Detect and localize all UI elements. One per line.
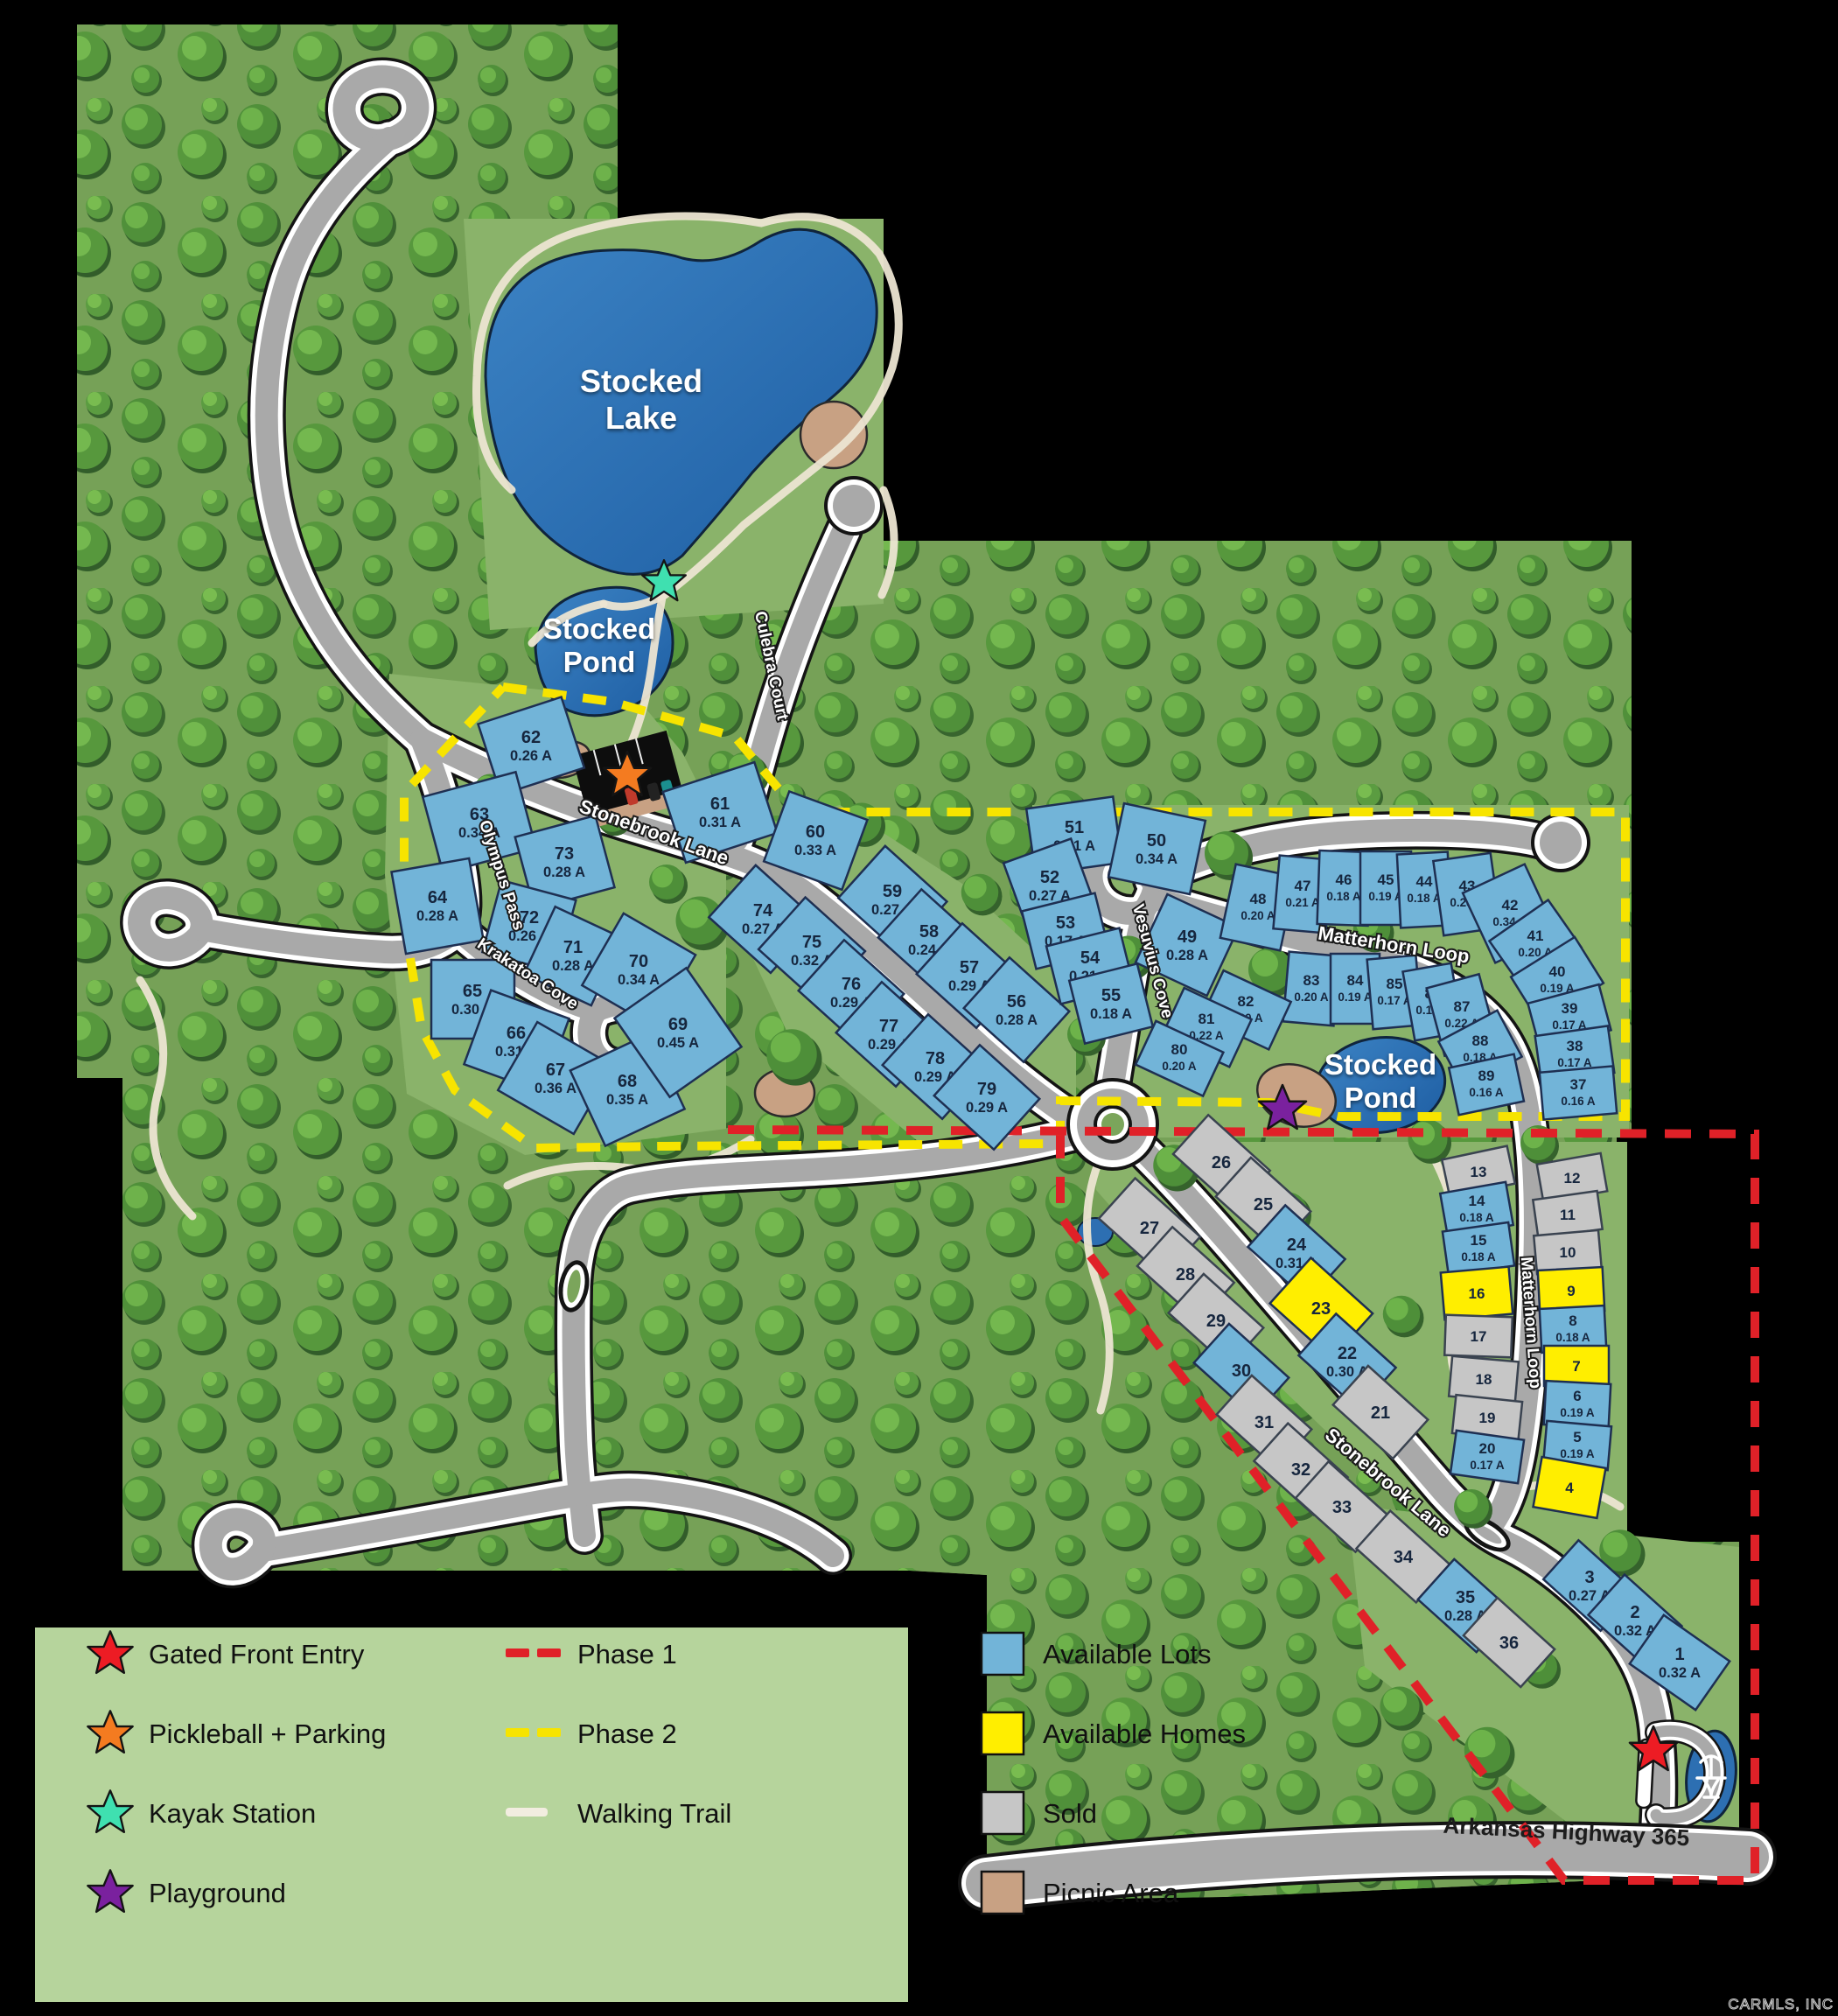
svg-text:60: 60 [806, 822, 825, 842]
svg-text:0.28 A: 0.28 A [1166, 948, 1208, 963]
svg-text:78: 78 [926, 1049, 945, 1068]
svg-text:50: 50 [1147, 831, 1166, 850]
lot-17[interactable]: 17 [1444, 1315, 1513, 1358]
svg-text:0.28 A: 0.28 A [543, 864, 585, 880]
svg-text:0.21 A: 0.21 A [1285, 896, 1320, 909]
legend-picnic-area-label: Picnic Area [1043, 1878, 1179, 1908]
svg-text:13: 13 [1471, 1164, 1487, 1180]
svg-text:37: 37 [1570, 1076, 1587, 1093]
svg-text:74: 74 [753, 901, 773, 920]
lot-20[interactable]: 200.17 A [1450, 1431, 1524, 1483]
svg-text:0.20 A: 0.20 A [1162, 1060, 1197, 1073]
svg-text:0.34 A: 0.34 A [1136, 851, 1178, 867]
legend-pickleball-label: Pickleball + Parking [149, 1718, 386, 1749]
svg-text:46: 46 [1336, 871, 1352, 888]
svg-text:71: 71 [563, 938, 583, 957]
svg-text:80: 80 [1171, 1041, 1188, 1058]
legend-available-homes-label: Available Homes [1043, 1718, 1246, 1749]
svg-text:42: 42 [1502, 897, 1519, 913]
site-plan-page: 620.26 A 610.31 A 630.34 A 730.28 A 640.… [0, 0, 1838, 2016]
svg-text:23: 23 [1311, 1299, 1331, 1319]
svg-text:0.16 A: 0.16 A [1561, 1095, 1596, 1108]
svg-text:17: 17 [1471, 1328, 1487, 1345]
svg-text:3: 3 [1584, 1568, 1594, 1587]
svg-text:0.17 A: 0.17 A [1557, 1056, 1592, 1069]
svg-text:0.34 A: 0.34 A [618, 972, 660, 988]
svg-text:77: 77 [879, 1017, 898, 1036]
svg-text:16: 16 [1469, 1285, 1485, 1302]
svg-text:Pond: Pond [563, 646, 635, 678]
svg-text:54: 54 [1080, 948, 1101, 968]
svg-text:7: 7 [1572, 1358, 1580, 1375]
svg-text:38: 38 [1567, 1038, 1583, 1054]
lot-37[interactable]: 370.16 A [1540, 1066, 1617, 1119]
svg-text:55: 55 [1101, 986, 1121, 1005]
svg-text:0.35 A: 0.35 A [606, 1092, 648, 1108]
svg-text:19: 19 [1479, 1410, 1496, 1426]
legend-phase1-label: Phase 1 [577, 1639, 677, 1669]
svg-text:0.31 A: 0.31 A [699, 815, 741, 830]
svg-text:52: 52 [1040, 868, 1059, 887]
svg-text:62: 62 [521, 728, 541, 747]
legend-available-lots-swatch [982, 1633, 1024, 1675]
svg-text:10: 10 [1560, 1244, 1576, 1261]
svg-text:9: 9 [1567, 1283, 1575, 1299]
svg-text:2: 2 [1630, 1603, 1639, 1622]
svg-text:Pond: Pond [1345, 1081, 1416, 1114]
svg-text:24: 24 [1287, 1235, 1307, 1255]
watermark: CARMLS, INC [1728, 1996, 1834, 2012]
svg-text:0.20 A: 0.20 A [1240, 909, 1275, 922]
svg-text:14: 14 [1469, 1193, 1485, 1209]
lot-7[interactable]: 7 [1544, 1346, 1609, 1386]
svg-text:8: 8 [1569, 1312, 1576, 1329]
svg-text:12: 12 [1564, 1170, 1581, 1186]
svg-text:84: 84 [1347, 972, 1364, 989]
svg-text:0.18 A: 0.18 A [1407, 892, 1442, 905]
svg-text:40: 40 [1549, 963, 1566, 980]
legend-walking-trail-line-icon [506, 1808, 548, 1816]
svg-text:0.45 A: 0.45 A [657, 1035, 699, 1051]
svg-text:20: 20 [1479, 1440, 1496, 1457]
svg-text:0.28 A: 0.28 A [552, 958, 594, 974]
svg-text:88: 88 [1472, 1032, 1489, 1049]
svg-text:0.32 A: 0.32 A [1659, 1665, 1701, 1681]
svg-text:47: 47 [1295, 878, 1311, 894]
svg-text:35: 35 [1456, 1588, 1475, 1607]
svg-text:0.19 A: 0.19 A [1338, 990, 1373, 1004]
legend-sold-swatch [982, 1792, 1024, 1834]
svg-text:27: 27 [1140, 1219, 1159, 1238]
svg-text:69: 69 [668, 1015, 688, 1034]
svg-text:18: 18 [1476, 1371, 1492, 1388]
svg-text:0.28 A: 0.28 A [416, 908, 458, 924]
svg-text:44: 44 [1416, 873, 1433, 890]
svg-text:68: 68 [618, 1072, 637, 1091]
roundabout [1066, 1078, 1159, 1171]
lot-50[interactable]: 500.34 A [1108, 803, 1206, 894]
svg-text:87: 87 [1454, 998, 1471, 1015]
svg-text:76: 76 [842, 975, 861, 994]
svg-text:15: 15 [1471, 1232, 1487, 1249]
svg-text:83: 83 [1303, 972, 1320, 989]
svg-text:0.18 A: 0.18 A [1555, 1331, 1590, 1344]
svg-text:26: 26 [1212, 1153, 1231, 1172]
svg-text:57: 57 [960, 958, 979, 977]
svg-text:82: 82 [1238, 993, 1254, 1010]
svg-text:89: 89 [1478, 1067, 1495, 1084]
legend-gated-entry-label: Gated Front Entry [149, 1639, 365, 1669]
svg-text:25: 25 [1254, 1195, 1273, 1214]
svg-text:79: 79 [977, 1080, 996, 1099]
svg-text:75: 75 [802, 933, 821, 952]
legend-available-lots-label: Available Lots [1043, 1639, 1211, 1669]
svg-text:28: 28 [1176, 1265, 1195, 1284]
svg-text:61: 61 [710, 794, 730, 814]
legend-available-homes-swatch [982, 1712, 1024, 1754]
svg-text:22: 22 [1338, 1344, 1357, 1363]
svg-text:56: 56 [1007, 992, 1026, 1011]
svg-text:29: 29 [1206, 1312, 1226, 1331]
svg-text:Stocked: Stocked [1324, 1048, 1436, 1081]
svg-text:81: 81 [1199, 1011, 1215, 1027]
legend-picnic-area-swatch [982, 1872, 1024, 1914]
svg-text:0.16 A: 0.16 A [1469, 1086, 1504, 1099]
site-map: 620.26 A 610.31 A 630.34 A 730.28 A 640.… [0, 0, 1838, 2016]
svg-text:45: 45 [1378, 871, 1394, 888]
svg-text:0.20 A: 0.20 A [1294, 990, 1329, 1004]
svg-text:48: 48 [1250, 891, 1267, 907]
svg-text:33: 33 [1332, 1498, 1352, 1517]
svg-text:85: 85 [1387, 976, 1403, 992]
svg-text:0.26 A: 0.26 A [510, 748, 552, 764]
svg-text:39: 39 [1562, 1000, 1578, 1017]
svg-text:1: 1 [1674, 1645, 1684, 1664]
svg-text:0.33 A: 0.33 A [794, 843, 836, 858]
svg-text:0.19 A: 0.19 A [1560, 1447, 1595, 1460]
svg-text:36: 36 [1499, 1634, 1519, 1653]
lot-4[interactable]: 4 [1534, 1457, 1606, 1518]
svg-text:0.28 A: 0.28 A [996, 1012, 1038, 1028]
svg-text:0.19 A: 0.19 A [1560, 1406, 1595, 1419]
legend-phase2-label: Phase 2 [577, 1718, 677, 1749]
svg-text:6: 6 [1573, 1388, 1581, 1404]
svg-text:Lake: Lake [605, 400, 677, 436]
svg-text:64: 64 [428, 888, 448, 907]
svg-text:Stocked: Stocked [580, 363, 702, 399]
svg-text:59: 59 [883, 882, 902, 901]
legend-playground-label: Playground [149, 1878, 286, 1908]
svg-text:4: 4 [1565, 1480, 1574, 1496]
svg-text:70: 70 [629, 952, 648, 971]
svg-text:Stocked: Stocked [543, 612, 655, 645]
svg-text:65: 65 [463, 982, 482, 1001]
svg-text:21: 21 [1371, 1403, 1390, 1423]
svg-text:41: 41 [1527, 927, 1544, 944]
svg-text:66: 66 [507, 1024, 526, 1043]
svg-text:31: 31 [1254, 1413, 1274, 1432]
svg-text:0.36 A: 0.36 A [535, 1081, 577, 1096]
svg-text:0.18 A: 0.18 A [1461, 1250, 1496, 1263]
svg-text:49: 49 [1178, 927, 1197, 947]
svg-text:5: 5 [1573, 1429, 1581, 1445]
svg-text:34: 34 [1394, 1548, 1414, 1567]
legend-walking-trail-label: Walking Trail [577, 1798, 731, 1829]
legend-sold-label: Sold [1043, 1798, 1097, 1829]
svg-text:58: 58 [919, 922, 939, 941]
svg-text:11: 11 [1560, 1207, 1576, 1223]
svg-text:0.18 A: 0.18 A [1090, 1006, 1132, 1022]
svg-text:73: 73 [555, 844, 574, 864]
svg-text:0.17 A: 0.17 A [1470, 1459, 1505, 1472]
svg-text:51: 51 [1065, 818, 1084, 837]
svg-text:0.18 A: 0.18 A [1459, 1211, 1494, 1224]
lot-64[interactable]: 640.28 A [392, 858, 484, 954]
svg-text:0.18 A: 0.18 A [1326, 890, 1361, 903]
svg-text:67: 67 [546, 1060, 565, 1080]
svg-text:53: 53 [1056, 913, 1075, 933]
lot-16[interactable]: 16 [1441, 1267, 1513, 1320]
svg-text:0.29 A: 0.29 A [966, 1100, 1008, 1116]
legend-kayak-label: Kayak Station [149, 1798, 316, 1829]
svg-text:32: 32 [1291, 1460, 1310, 1480]
